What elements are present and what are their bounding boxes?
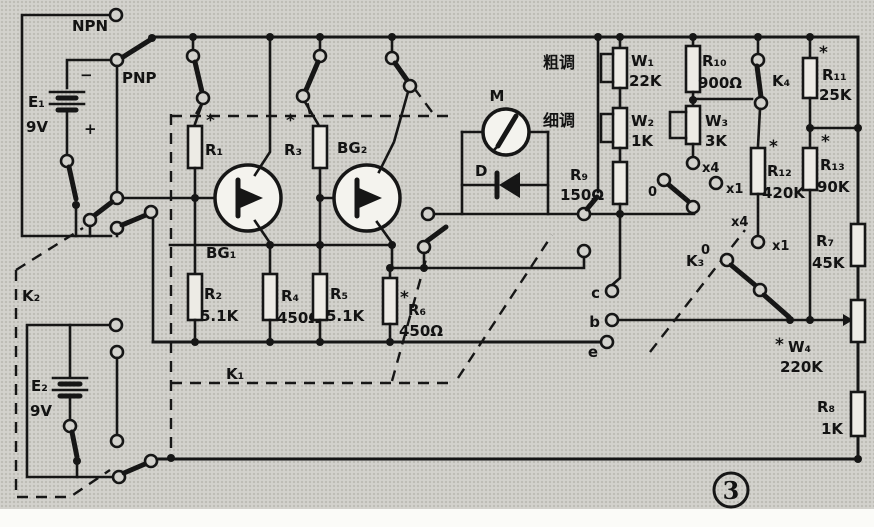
r6-value: 450Ω	[399, 322, 443, 340]
bg1-collector-lead	[255, 37, 270, 175]
resistor-r9	[613, 162, 627, 204]
switch-arm	[306, 62, 318, 90]
r13-name: R₁₃	[820, 156, 845, 174]
e1-switch-arm	[69, 167, 76, 199]
npn-label: NPN	[72, 17, 108, 35]
wire	[305, 102, 318, 124]
r13-star: *	[821, 132, 830, 152]
contact	[687, 201, 699, 213]
contact	[578, 245, 590, 257]
r5-name: R₅	[330, 285, 348, 303]
r9-name: R₉	[570, 166, 588, 184]
c-drop	[612, 214, 620, 285]
k2-label: K₂	[22, 287, 40, 305]
w3-value: 3K	[705, 132, 728, 150]
e1-voltage: 9V	[26, 118, 48, 136]
range-selector-arm	[669, 185, 688, 201]
selector-arm	[427, 227, 446, 241]
tap-x1-upper	[710, 177, 722, 189]
schematic-scan: NPN PNP E₁ 9V − + E₂ 9V K₂ K₁	[0, 0, 874, 527]
k4-label: K₄	[772, 72, 790, 90]
pot-w3	[686, 106, 700, 144]
w4-value: 220K	[780, 358, 824, 376]
junction	[73, 457, 81, 465]
e2-voltage: 9V	[30, 402, 52, 420]
r10-name: R₁₀	[702, 52, 727, 70]
contact	[110, 319, 122, 331]
contact	[145, 206, 157, 218]
r11-star: *	[819, 43, 828, 63]
e2-switch-contact	[64, 420, 76, 432]
k1-diag	[458, 235, 552, 378]
switch-arm	[122, 215, 146, 225]
terminal-c	[606, 285, 618, 297]
r2-value: 5.1K	[200, 307, 240, 325]
r11-name: R₁₁	[822, 66, 847, 84]
e1-switch-contact	[61, 155, 73, 167]
w1-wiper-loop	[601, 54, 613, 82]
e2-name: E₂	[31, 377, 48, 395]
k4-arm	[757, 66, 761, 97]
resistor-r6	[383, 278, 397, 324]
resistor-r11	[803, 58, 817, 98]
w1-value: 22K	[629, 72, 663, 90]
contact	[111, 346, 123, 358]
return-switch-arm	[124, 464, 145, 473]
terminal-b	[606, 314, 618, 326]
polarity-selector-arm	[123, 40, 150, 57]
r7-value: 45K	[812, 254, 846, 272]
w2-wiper-loop	[601, 114, 613, 142]
contact	[755, 97, 767, 109]
terminal-e	[601, 336, 613, 348]
k3-arm-upper	[731, 265, 755, 285]
pot-w1	[613, 48, 627, 88]
contact	[145, 455, 157, 467]
w4-star: *	[775, 335, 784, 355]
circuit-diagram: NPN PNP E₁ 9V − + E₂ 9V K₂ K₁	[0, 0, 874, 527]
w1-name: W₁	[631, 52, 654, 70]
r10-value: 900Ω	[698, 74, 742, 92]
switch-arm	[195, 62, 202, 92]
k2-linkage-dashed-upper	[16, 228, 83, 270]
switch-arm	[395, 63, 407, 80]
contact	[297, 90, 309, 102]
r6-name: R₆	[408, 301, 426, 319]
k1-diag	[414, 88, 432, 112]
tap-x1-lower-label: x1	[772, 239, 789, 254]
tap-x1-lower	[752, 236, 764, 248]
r8-name: R₈	[817, 398, 835, 416]
pot-w2	[613, 108, 627, 148]
tap-zero-upper-label: 0	[648, 185, 657, 200]
w2-value: 1K	[631, 132, 654, 150]
diode-label: D	[475, 162, 487, 180]
wire	[758, 109, 760, 146]
r1-star: *	[206, 111, 215, 131]
w3-name: W₃	[705, 112, 728, 130]
bg1-label: BG₁	[206, 244, 236, 262]
r7-name: R₇	[816, 232, 834, 250]
w2-name: W₂	[631, 112, 654, 130]
pnp-label: PNP	[122, 69, 157, 87]
contact	[422, 208, 434, 220]
e2-switch-arm	[72, 432, 77, 457]
resistor-r7	[851, 224, 865, 266]
switch-arm	[95, 202, 112, 215]
r11-value: 25K	[819, 86, 853, 104]
tap-x1-upper-label: x1	[726, 182, 743, 197]
r12-value: 420K	[762, 184, 806, 202]
e1-minus-sign: −	[80, 66, 93, 84]
k3-linkage-dashed	[650, 230, 745, 352]
r3-star: *	[286, 111, 295, 131]
contact	[84, 214, 96, 226]
figure-number: 3	[723, 476, 740, 505]
pot-w4	[851, 300, 865, 342]
tap-x4-upper-label: x4	[702, 161, 719, 176]
resistor-r13	[803, 148, 817, 190]
diode-symbol	[499, 172, 520, 198]
r1-name: R₁	[205, 141, 223, 159]
r8-value: 1K	[821, 420, 844, 438]
r12-name: R₁₂	[767, 162, 792, 180]
k1-label: K₁	[226, 365, 244, 383]
w1-caption: 粗调	[543, 53, 575, 72]
junction	[72, 201, 80, 209]
contact	[197, 92, 209, 104]
w2-caption: 细调	[543, 111, 575, 130]
w3-wiper-loop	[670, 112, 686, 138]
k3-label: K₃	[686, 252, 704, 270]
tap-x4-lower-label: x4	[731, 215, 748, 230]
contact	[404, 80, 416, 92]
r12-star: *	[769, 137, 778, 157]
contact	[314, 50, 326, 62]
npn-contact	[110, 9, 122, 21]
resistor-r4	[263, 274, 277, 320]
r3-name: R₃	[284, 141, 302, 159]
contact	[111, 435, 123, 447]
terminal-b-label: b	[589, 313, 600, 331]
terminal-e-label: e	[588, 343, 598, 361]
r4-name: R₄	[281, 287, 299, 305]
meter-label: M	[490, 87, 505, 105]
resistor-r8	[851, 392, 865, 436]
resistor-r1	[188, 126, 202, 168]
contact	[187, 50, 199, 62]
terminal-c-label: c	[591, 284, 600, 302]
r2-name: R₂	[204, 285, 222, 303]
r13-value: 90K	[817, 178, 851, 196]
e1-name: E₁	[28, 93, 45, 111]
contact	[418, 241, 430, 253]
bg2-label: BG₂	[337, 139, 367, 157]
r9-value: 150Ω	[560, 186, 604, 204]
e1-plus-sign: +	[84, 120, 97, 138]
tap-x4-upper	[687, 157, 699, 169]
bg2-collector-lead	[379, 92, 408, 172]
r5-value: 5.1K	[326, 307, 366, 325]
k3-arm-lower	[764, 295, 789, 317]
resistor-r5	[313, 274, 327, 320]
resistor-r3	[313, 126, 327, 168]
w4-name: W₄	[788, 338, 811, 356]
scan-margin-bottom	[0, 509, 874, 527]
